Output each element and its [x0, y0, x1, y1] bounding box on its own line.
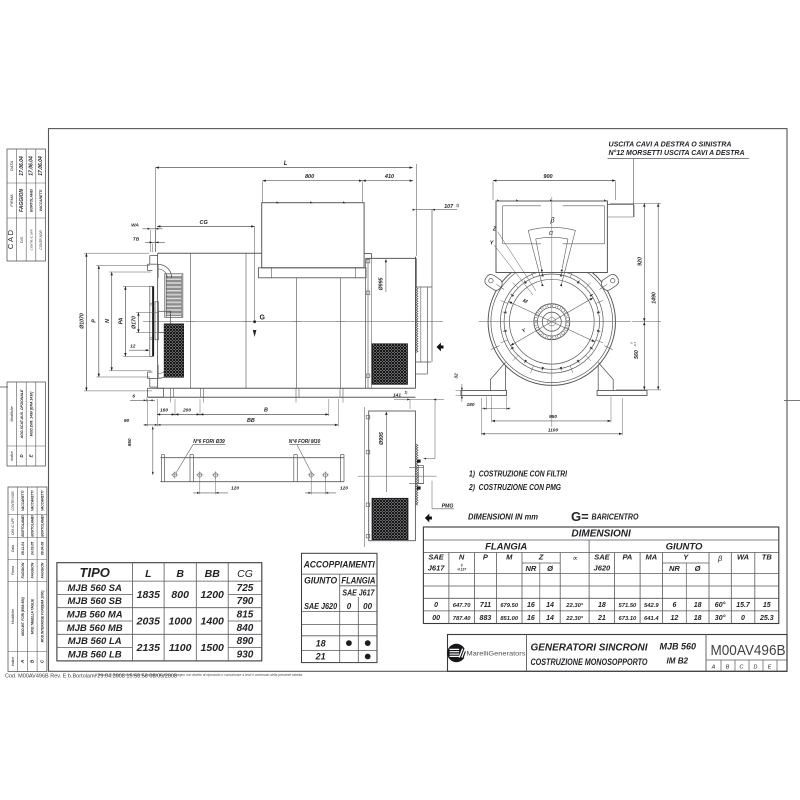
- svg-text:E: E: [768, 664, 772, 670]
- svg-text:DIS.: DIS.: [20, 236, 24, 243]
- svg-text:571.50: 571.50: [619, 603, 638, 609]
- svg-text:Ø995: Ø995: [379, 432, 385, 445]
- svg-text:A termini di legge ci riservia: A termini di legge ci riserviamo la prop…: [94, 673, 303, 677]
- svg-text:0: 0: [434, 602, 438, 609]
- svg-text:Ø1070: Ø1070: [79, 313, 85, 329]
- svg-text:1100: 1100: [548, 427, 559, 433]
- svg-text:09.11.04: 09.11.04: [21, 542, 25, 555]
- svg-text:MJB 560 SA: MJB 560 SA: [68, 583, 123, 594]
- svg-text:MJB 560 LA: MJB 560 LA: [68, 636, 122, 647]
- svg-text:16: 16: [527, 602, 535, 609]
- svg-text:17.06.04: 17.06.04: [28, 156, 34, 176]
- svg-text:21: 21: [315, 652, 326, 662]
- svg-text:1200: 1200: [201, 589, 225, 601]
- svg-text:00: 00: [363, 602, 372, 611]
- svg-text:Ø995: Ø995: [378, 278, 384, 291]
- svg-text:CG: CG: [199, 220, 208, 226]
- svg-text:MA: MA: [645, 553, 657, 562]
- svg-text:673.10: 673.10: [619, 616, 638, 622]
- svg-text:N°4 FORI M30: N°4 FORI M30: [289, 439, 321, 445]
- svg-text:MJB 560 MB: MJB 560 MB: [67, 623, 123, 634]
- svg-text:MOD.INT. FORI (ERA 950): MOD.INT. FORI (ERA 950): [21, 597, 25, 635]
- svg-text:MJB 560 MA: MJB 560 MA: [67, 610, 123, 621]
- svg-text:DIMENSIONI IN mm: DIMENSIONI IN mm: [468, 513, 538, 522]
- svg-text:920: 920: [638, 257, 644, 266]
- svg-text:J617: J617: [428, 564, 446, 573]
- svg-text:B: B: [176, 568, 184, 580]
- svg-text:Firma: Firma: [11, 566, 15, 575]
- svg-text:L: L: [284, 161, 288, 167]
- svg-text:18: 18: [694, 602, 702, 609]
- svg-text:14: 14: [546, 615, 554, 622]
- svg-text:787.40: 787.40: [453, 616, 472, 622]
- svg-text:790: 790: [237, 596, 254, 607]
- svg-text:18: 18: [694, 615, 702, 622]
- svg-text:22.30°: 22.30°: [565, 616, 584, 622]
- svg-text:N°12 MORSETTI USCITA CAVI A DE: N°12 MORSETTI USCITA CAVI A DESTRA: [609, 148, 745, 157]
- svg-text:1500: 1500: [201, 642, 225, 654]
- svg-text:CONTR.NOR.: CONTR.NOR.: [39, 229, 43, 249]
- svg-text:N: N: [459, 553, 465, 562]
- svg-text:BORTOLAMEI: BORTOLAMEI: [29, 189, 33, 212]
- svg-text:12: 12: [130, 344, 136, 350]
- svg-text:DATA: DATA: [9, 161, 14, 171]
- svg-text:30°: 30°: [715, 614, 726, 622]
- svg-text:FAGGION: FAGGION: [40, 562, 44, 578]
- svg-text:MOD.INTERASSE FORI(ERA 1000): MOD.INTERASSE FORI(ERA 1000): [40, 591, 44, 643]
- svg-text:BORTOLAMEI: BORTOLAMEI: [21, 515, 25, 536]
- svg-text:M: M: [506, 553, 513, 562]
- svg-text:IM B2: IM B2: [667, 657, 689, 666]
- svg-text:180: 180: [466, 402, 474, 408]
- svg-text:542.9: 542.9: [644, 603, 659, 609]
- svg-text:Z: Z: [492, 227, 497, 233]
- svg-text:800: 800: [171, 589, 189, 601]
- svg-text:FAGGION: FAGGION: [31, 562, 35, 578]
- svg-text:USCITA CAVI A DESTRA O SINISTR: USCITA CAVI A DESTRA O SINISTRA: [609, 140, 732, 149]
- svg-text:890: 890: [237, 636, 254, 647]
- svg-text:SAE: SAE: [594, 553, 610, 562]
- svg-text:25.3: 25.3: [759, 615, 774, 622]
- svg-text:160: 160: [160, 407, 168, 413]
- svg-text:BARICENTRO: BARICENTRO: [592, 513, 640, 522]
- svg-text:NR: NR: [525, 564, 536, 573]
- svg-text:725: 725: [237, 583, 254, 594]
- svg-text:Data: Data: [11, 545, 15, 553]
- svg-text:0: 0: [347, 602, 352, 611]
- svg-text:711: 711: [480, 602, 491, 609]
- svg-text:ACCOPPIAMENTI: ACCOPPIAMENTI: [303, 559, 375, 569]
- svg-text:AGG.SCAT.AUS. OPZIONALE: AGG.SCAT.AUS. OPZIONALE: [20, 389, 24, 439]
- svg-text:1100: 1100: [169, 642, 192, 654]
- svg-text:A: A: [20, 660, 25, 664]
- svg-text:VACCARETTI: VACCARETTI: [21, 490, 25, 510]
- svg-text:647.70: 647.70: [453, 603, 472, 609]
- svg-text:800: 800: [305, 174, 314, 180]
- svg-text:D: D: [754, 664, 758, 670]
- svg-text:679.50: 679.50: [500, 603, 519, 609]
- svg-text:1): 1): [405, 391, 408, 395]
- svg-text:60°: 60°: [715, 601, 726, 609]
- svg-text:MJB 560 SB: MJB 560 SB: [68, 596, 123, 607]
- svg-text:SAE J617: SAE J617: [342, 588, 374, 597]
- svg-text:GIUNTO: GIUNTO: [304, 576, 337, 586]
- svg-text:BB: BB: [247, 418, 255, 424]
- svg-text:PA: PA: [622, 553, 632, 562]
- svg-text:2135: 2135: [136, 642, 161, 654]
- svg-text:6: 6: [132, 394, 135, 400]
- svg-text:FLANGIA: FLANGIA: [341, 576, 375, 586]
- svg-text:90: 90: [124, 418, 130, 424]
- svg-text:MJB 560 LB: MJB 560 LB: [68, 650, 122, 661]
- svg-text:MarelliGenerators: MarelliGenerators: [467, 651, 526, 658]
- svg-text:N°6 FORI Ø39: N°6 FORI Ø39: [193, 439, 225, 445]
- svg-text:Modifiche: Modifiche: [10, 406, 14, 421]
- svg-text:SAE: SAE: [428, 553, 444, 562]
- svg-text:WA: WA: [131, 223, 139, 229]
- svg-text:FAGGION: FAGGION: [19, 189, 25, 212]
- svg-text:18: 18: [598, 602, 606, 609]
- svg-text:0: 0: [741, 615, 745, 622]
- svg-text:MOD.DIM. 1490 [ERA 1430]: MOD.DIM. 1490 [ERA 1430]: [29, 391, 33, 436]
- svg-text:TB: TB: [762, 553, 773, 562]
- svg-text:950: 950: [127, 438, 133, 446]
- svg-text:A: A: [711, 664, 716, 670]
- svg-text:00: 00: [432, 615, 440, 622]
- svg-text:17.06.04: 17.06.04: [38, 156, 44, 176]
- svg-text:930: 930: [237, 650, 254, 661]
- svg-text:B: B: [726, 664, 730, 670]
- svg-text:DIM./C.UFF.: DIM./C.UFF.: [11, 517, 15, 535]
- svg-text:N: N: [105, 319, 111, 323]
- svg-text:J620: J620: [594, 564, 612, 573]
- svg-text:∝: ∝: [572, 554, 578, 563]
- svg-text:CONTR.NOR.: CONTR.NOR.: [11, 490, 15, 510]
- svg-text:851.00: 851.00: [500, 616, 519, 622]
- svg-text:1) COSTRUZIONE CON FILTRI: 1) COSTRUZIONE CON FILTRI: [469, 470, 568, 479]
- svg-text:12: 12: [671, 615, 679, 622]
- svg-text:Indice: Indice: [11, 657, 15, 667]
- svg-text:C: C: [740, 664, 744, 670]
- svg-text:CG: CG: [237, 568, 253, 580]
- svg-text:SAE J620: SAE J620: [304, 602, 337, 611]
- svg-text:1490: 1490: [651, 292, 657, 304]
- svg-text:BB: BB: [205, 568, 221, 580]
- svg-text:1835: 1835: [137, 589, 161, 601]
- svg-text:B: B: [264, 407, 268, 413]
- svg-text:120: 120: [231, 485, 239, 491]
- svg-text:L: L: [145, 568, 151, 580]
- svg-text:CONTR./C.UFF.: CONTR./C.UFF.: [29, 229, 33, 251]
- svg-text:107: 107: [444, 204, 454, 210]
- svg-text:β: β: [717, 554, 723, 563]
- svg-text:G: G: [260, 315, 266, 322]
- svg-text:COSTRUZIONE MONOSOPPORTO: COSTRUZIONE MONOSOPPORTO: [531, 657, 648, 667]
- svg-text:VACCARETTI: VACCARETTI: [39, 190, 43, 212]
- svg-text:GENERATORI SINCRONI: GENERATORI SINCRONI: [531, 643, 648, 654]
- svg-text:6: 6: [672, 602, 676, 609]
- svg-text:840: 840: [237, 623, 254, 634]
- svg-text:1400: 1400: [201, 615, 225, 627]
- svg-text:VACCARETTI: VACCARETTI: [31, 490, 35, 510]
- svg-text:2035: 2035: [136, 615, 161, 627]
- svg-text:32: 32: [454, 373, 460, 379]
- svg-text:BORTOLAMEI: BORTOLAMEI: [40, 515, 44, 536]
- svg-text:M00AV496B: M00AV496B: [711, 643, 786, 659]
- svg-text:410: 410: [384, 174, 394, 180]
- svg-text:PA: PA: [118, 317, 124, 324]
- svg-text:22.30°: 22.30°: [565, 603, 584, 609]
- svg-text:GIUNTO: GIUNTO: [666, 541, 703, 552]
- svg-text:560: 560: [634, 350, 640, 359]
- svg-text:FAGGION: FAGGION: [21, 562, 25, 578]
- svg-text:Y: Y: [490, 241, 494, 247]
- svg-text:24.03.05: 24.03.05: [31, 542, 35, 556]
- svg-text:950: 950: [549, 414, 557, 420]
- svg-text:200: 200: [182, 407, 191, 413]
- svg-text:BORTOLAMEI: BORTOLAMEI: [31, 515, 35, 536]
- svg-text:1000: 1000: [169, 615, 193, 627]
- svg-text:MJB 560: MJB 560: [660, 642, 697, 653]
- svg-text:141: 141: [393, 392, 401, 398]
- svg-text:883: 883: [480, 615, 492, 622]
- svg-text:2) COSTRUZIONE CON PMG: 2) COSTRUZIONE CON PMG: [468, 483, 561, 492]
- svg-text:16: 16: [527, 615, 535, 622]
- svg-text:Ø170: Ø170: [132, 316, 138, 329]
- svg-text:G=: G=: [571, 509, 589, 524]
- svg-text:DIMENSIONI: DIMENSIONI: [571, 529, 631, 540]
- svg-text:TIPO: TIPO: [80, 565, 110, 580]
- svg-text:Indice: Indice: [10, 451, 14, 461]
- svg-text:17.06.04: 17.06.04: [19, 156, 25, 176]
- svg-text:21: 21: [597, 615, 606, 622]
- svg-text:-0.127: -0.127: [457, 568, 466, 572]
- svg-text:09.04.08: 09.04.08: [40, 542, 44, 555]
- svg-text:120: 120: [340, 485, 348, 491]
- svg-text:C A D: C A D: [6, 229, 15, 249]
- svg-text:15.7: 15.7: [736, 602, 751, 609]
- svg-text:900: 900: [543, 174, 552, 180]
- svg-text:FLANGIA: FLANGIA: [485, 541, 527, 552]
- svg-text:WA: WA: [737, 553, 749, 562]
- svg-text:Z: Z: [538, 553, 544, 562]
- svg-text:-0.1: -0.1: [633, 342, 637, 347]
- svg-text:NR: NR: [669, 564, 680, 573]
- svg-text:P: P: [91, 319, 97, 323]
- svg-text:815: 815: [237, 610, 254, 621]
- svg-text:FIRMA: FIRMA: [9, 194, 14, 207]
- svg-text:15: 15: [763, 602, 771, 609]
- svg-text:18: 18: [316, 638, 326, 648]
- svg-text:14: 14: [546, 602, 554, 609]
- svg-text:641.4: 641.4: [644, 616, 659, 622]
- svg-text:TB: TB: [133, 236, 140, 242]
- svg-text:VACCARETTI: VACCARETTI: [40, 490, 44, 510]
- svg-text:PMG: PMG: [442, 503, 454, 509]
- svg-text:Modifiche: Modifiche: [11, 609, 15, 624]
- svg-text:MOD.TABELLA TAGLIE: MOD.TABELLA TAGLIE: [31, 598, 35, 634]
